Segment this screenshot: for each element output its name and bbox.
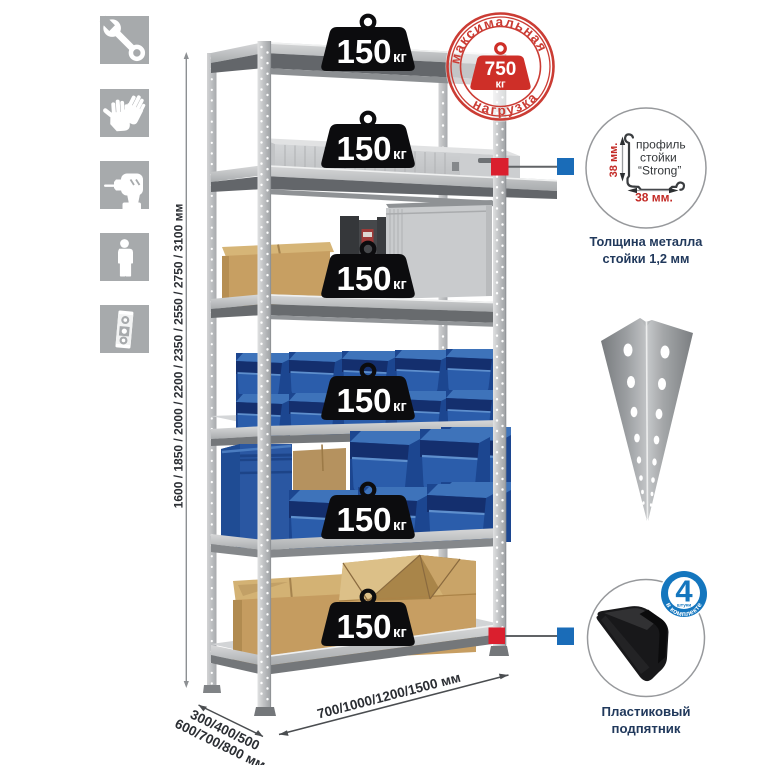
svg-text:Пластиковый: Пластиковый <box>601 704 690 719</box>
svg-text:1600 / 1850 / 2000 / 2200 / 23: 1600 / 1850 / 2000 / 2200 / 2350 / 2550 … <box>172 204 186 509</box>
svg-text:стойки 1,2 мм: стойки 1,2 мм <box>602 251 689 266</box>
svg-text:Толщина металла: Толщина металла <box>590 234 704 249</box>
svg-text:подпятник: подпятник <box>611 721 680 736</box>
svg-text:“Strong”: “Strong” <box>638 164 681 178</box>
svg-text:штуки: штуки <box>677 604 692 609</box>
svg-text:профиль: профиль <box>636 138 686 152</box>
svg-text:кг: кг <box>495 79 506 91</box>
svg-text:750: 750 <box>485 59 517 80</box>
svg-text:стойки: стойки <box>640 151 677 165</box>
svg-text:38 мм.: 38 мм. <box>608 143 620 178</box>
svg-text:38 мм.: 38 мм. <box>635 191 673 205</box>
